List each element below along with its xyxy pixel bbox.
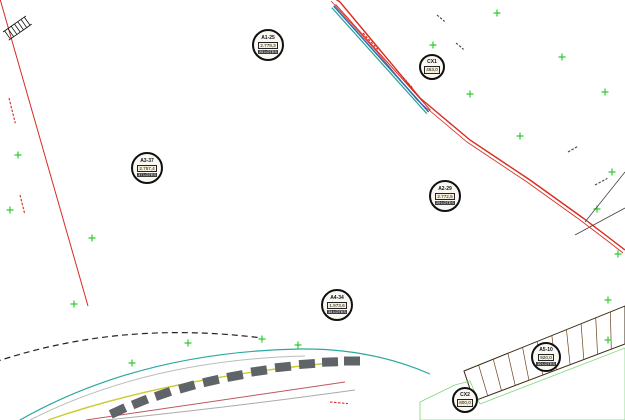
boundary-line — [0, 0, 88, 306]
survey-cross-icon — [609, 169, 616, 176]
parking-stall — [131, 395, 149, 409]
boundary-line — [334, 0, 625, 250]
street-name-text — [456, 43, 464, 49]
dashed-boundary — [0, 333, 262, 362]
survey-cross-icon — [89, 235, 96, 242]
dimension-line — [585, 172, 625, 222]
parking-stall — [322, 357, 338, 367]
street-name-text — [369, 58, 376, 81]
survey-cross-icon — [71, 301, 78, 308]
survey-cross-icon — [494, 10, 501, 17]
block-area: 2.772,5 — [435, 193, 454, 201]
street-name-text — [248, 226, 277, 235]
street-name-text — [312, 378, 340, 382]
block-area: 800,0 — [457, 399, 473, 407]
site-plan-canvas: A1-252.779,325 LOTESCX1463,0A3-372.757,4… — [0, 0, 625, 420]
survey-cross-icon — [7, 207, 14, 214]
block-label-A5-10: A5-10920,010 LOTES — [531, 342, 561, 372]
street-name-text — [193, 146, 200, 171]
block-area: 920,0 — [538, 354, 554, 362]
block-lot-count: 37 LOTES — [137, 173, 157, 178]
parking-stall — [178, 380, 196, 393]
street-name-text — [9, 98, 15, 123]
street-name-text — [595, 178, 607, 185]
block-label-CX2: CX2800,0 — [452, 387, 478, 413]
parking-stall — [202, 375, 220, 387]
block-label-A2-29: A2-292.772,529 LOTES — [429, 180, 461, 212]
survey-cross-icon — [517, 133, 524, 140]
street-name-text — [233, 294, 240, 317]
block-label-A3-37: A3-372.757,437 LOTES — [131, 152, 163, 184]
block-lot-count: 34 LOTES — [327, 310, 347, 315]
survey-cross-icon — [185, 340, 192, 347]
block-area: 1.973,6 — [327, 302, 346, 310]
street-name-text — [282, 114, 311, 122]
survey-cross-icon — [605, 337, 612, 344]
block-area: 2.779,3 — [258, 42, 277, 50]
stair-symbol — [3, 16, 32, 40]
parking-stall — [299, 359, 316, 369]
survey-cross-icon — [295, 342, 302, 349]
parking-stall — [344, 357, 360, 366]
avenue-stripe — [334, 6, 429, 112]
block-lot-count: 10 LOTES — [536, 362, 556, 367]
block-label-CX1: CX1463,0 — [419, 54, 445, 80]
street-name-text — [437, 15, 445, 21]
green-area — [420, 348, 625, 420]
parking-stall — [275, 362, 292, 373]
street-name-text — [568, 146, 578, 152]
survey-cross-icon — [467, 91, 474, 98]
block-lot-count: 29 LOTES — [435, 201, 455, 206]
survey-cross-icon — [605, 297, 612, 304]
survey-cross-icon — [430, 42, 437, 49]
street-name-text — [20, 195, 25, 214]
block-label-A4-34: A4-341.973,634 LOTES — [321, 289, 353, 321]
street-name-text — [330, 402, 348, 404]
street-name-text — [552, 272, 561, 292]
survey-cross-icon — [615, 251, 622, 258]
street-name-text — [400, 248, 406, 269]
survey-cross-icon — [15, 152, 22, 159]
street-name-text — [42, 118, 48, 139]
avenue-stripe — [332, 8, 427, 114]
curved-road-line — [86, 382, 345, 420]
survey-cross-icon — [259, 336, 266, 343]
block-lot-count: 25 LOTES — [258, 50, 278, 55]
block-label-A1-25: A1-252.779,325 LOTES — [252, 29, 284, 61]
survey-cross-icon — [559, 54, 566, 61]
avenue-stripe — [336, 4, 431, 110]
survey-cross-icon — [129, 360, 136, 367]
street-name-text — [428, 270, 453, 278]
block-area: 463,0 — [424, 66, 440, 74]
survey-cross-icon — [602, 89, 609, 96]
block-area: 2.757,4 — [137, 165, 156, 173]
parking-stall — [226, 370, 243, 382]
parking-stall — [250, 365, 267, 376]
